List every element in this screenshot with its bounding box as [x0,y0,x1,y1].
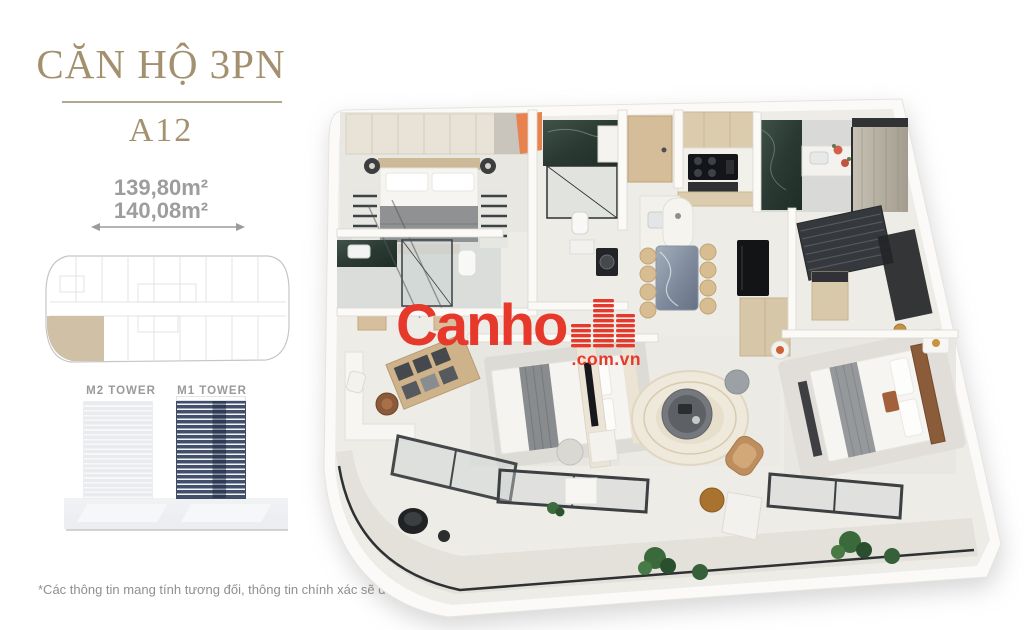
canho-domain-text: .com.vn [571,349,641,370]
page: CĂN HỘ 3PN A12 139,80m² 140,08m² M2 TO [0,0,1024,630]
entry-door [628,116,672,182]
canho-brand-text: Canho [396,299,566,352]
canho-buildings-icon [571,299,635,349]
master-closet [346,113,528,154]
canho-watermark: Canho .com.vn [396,299,641,370]
bedroom2-nightstand [557,439,583,465]
canho-watermark-right: .com.vn [571,299,641,370]
